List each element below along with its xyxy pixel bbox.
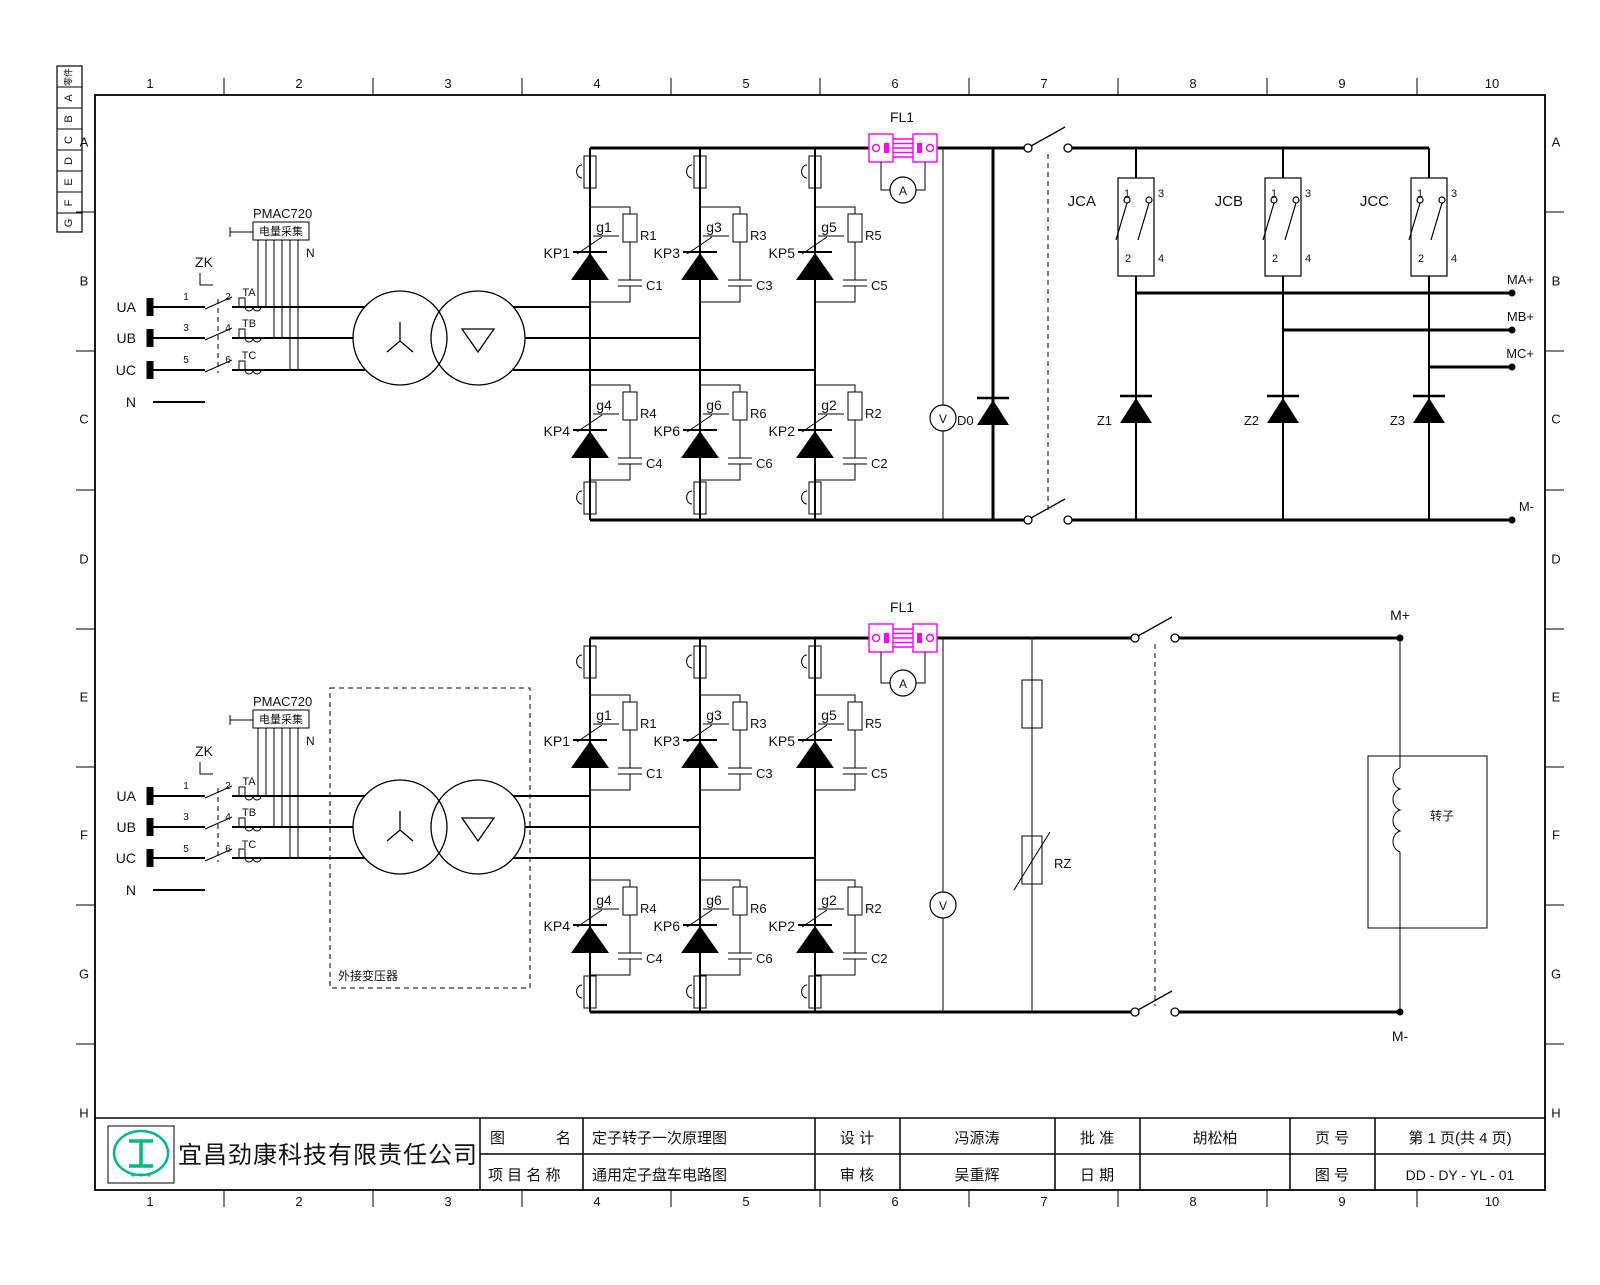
corner-strip: 零件 A B C D E F G (57, 66, 82, 232)
svg-text:C5: C5 (871, 766, 888, 781)
phase-uc-label: UC (116, 850, 136, 866)
shunt-fuse-fl1 (869, 624, 937, 652)
svg-text:g1: g1 (596, 707, 612, 723)
svg-text:R6: R6 (750, 901, 767, 916)
zone-row: H (1551, 1105, 1560, 1120)
svg-text:R3: R3 (750, 716, 767, 731)
output-ma-label: MA+ (1507, 272, 1534, 287)
external-transformer-label: 外接变压器 (338, 968, 398, 983)
svg-text:FL1: FL1 (890, 599, 914, 615)
zone-letters: A B C D E F G H A B C D E F G H (79, 134, 1561, 1120)
zone-numbers-top: 1 2 3 4 5 6 7 8 9 10 (146, 76, 1499, 91)
svg-text:1: 1 (1124, 188, 1130, 200)
svg-text:2: 2 (225, 781, 231, 792)
zone-row: F (1552, 827, 1560, 842)
project-name-value: 通用定子盘车电路图 (592, 1166, 727, 1184)
phase-ua-label: UA (117, 788, 137, 804)
ct-ta-label: TA (242, 776, 256, 788)
strip-cell: 零件 (62, 68, 73, 86)
diode-z1 (1120, 396, 1152, 423)
svg-text:3: 3 (1305, 188, 1311, 200)
svg-text:4: 4 (225, 812, 231, 823)
c4-label: C4 (646, 456, 663, 471)
zone-col: 9 (1338, 1194, 1345, 1209)
output-mminus-label: M- (1519, 499, 1534, 514)
kp6-label: KP6 (654, 423, 681, 439)
strip-cell: D (63, 157, 75, 165)
zone-col: 1 (146, 1194, 153, 1209)
stator-transformer (353, 291, 525, 385)
thyristor-kp6 (681, 414, 729, 458)
rotor-circuit: UA UB UC N ZK 12 34 56 TA TB TC PMAC720 … (116, 599, 1487, 1044)
dc-switch-bottom (1131, 991, 1179, 1016)
ct-tb-label: TB (242, 807, 256, 819)
zone-col: 1 (146, 76, 153, 91)
zk-pin: 2 (225, 292, 231, 303)
output-mc-label: MC+ (1506, 346, 1534, 361)
mminus-label: M- (1392, 1028, 1409, 1044)
svg-text:ZK: ZK (195, 743, 214, 759)
jcb-label: JCB (1215, 193, 1243, 210)
svg-text:C3: C3 (756, 766, 773, 781)
svg-text:KP3: KP3 (654, 733, 681, 749)
strip-cell: A (63, 94, 75, 102)
kp5-label: KP5 (769, 245, 796, 261)
zone-row: A (80, 134, 89, 149)
checker-name: 吴重辉 (954, 1167, 999, 1184)
zone-row: E (80, 689, 89, 704)
zk-label: ZK (195, 254, 214, 270)
svg-text:1: 1 (1417, 188, 1423, 200)
zone-row: F (80, 827, 88, 842)
thyristor-kp1 (571, 724, 619, 768)
svg-text:C4: C4 (646, 951, 663, 966)
c3-label: C3 (756, 278, 773, 293)
strip-cell: B (63, 115, 75, 122)
zone-row: E (1552, 689, 1561, 704)
kp1-label: KP1 (544, 245, 571, 261)
thyristor-kp5 (796, 724, 844, 768)
svg-text:A: A (899, 677, 907, 691)
svg-text:N: N (306, 734, 315, 748)
company-name: 宜昌劲康科技有限责任公司 (178, 1142, 478, 1169)
g5-label: g5 (821, 219, 837, 235)
zone-col: 7 (1040, 76, 1047, 91)
kp2-label: KP2 (769, 423, 796, 439)
pmac-model: PMAC720 (253, 206, 312, 221)
svg-text:R1: R1 (640, 716, 657, 731)
company-logo (108, 1126, 174, 1183)
zk-pin: 1 (183, 292, 189, 303)
zone-col: 2 (295, 1194, 302, 1209)
zone-row: A (1552, 134, 1561, 149)
zone-col: 8 (1189, 1194, 1196, 1209)
svg-text:R5: R5 (865, 716, 882, 731)
thyristor-kp3 (681, 236, 729, 280)
neutral-label: N (126, 882, 136, 898)
drawing-name-label: 图 (490, 1130, 505, 1147)
svg-text:C2: C2 (871, 951, 888, 966)
svg-text:KP6: KP6 (654, 918, 681, 934)
phase-ub-label: UB (117, 330, 136, 346)
kp3-label: KP3 (654, 245, 681, 261)
zk-pin: 5 (183, 355, 189, 366)
approver-name: 胡松柏 (1192, 1130, 1237, 1147)
svg-text:V: V (939, 899, 947, 913)
zone-row: C (79, 411, 88, 426)
jca-label: JCA (1068, 193, 1096, 210)
thyristor-kp5 (796, 236, 844, 280)
rotor-transformer (353, 780, 525, 874)
zone-col: 5 (742, 76, 749, 91)
thyristor-kp4 (571, 414, 619, 458)
dc-switch-bottom (1024, 499, 1072, 524)
svg-text:2: 2 (1272, 253, 1278, 265)
zone-row: G (79, 966, 89, 981)
g3-label: g3 (706, 219, 722, 235)
g1-label: g1 (596, 219, 612, 235)
rotor-label: 转子 (1430, 808, 1454, 823)
svg-text:2: 2 (1125, 253, 1131, 265)
svg-text:3: 3 (183, 812, 189, 823)
z2-label: Z2 (1244, 413, 1259, 428)
r3-label: R3 (750, 228, 767, 243)
g4-label: g4 (596, 397, 612, 413)
zone-col: 6 (891, 1194, 898, 1209)
phase-ua-label: UA (117, 299, 137, 315)
project-name-label: 项 目 名 称 (488, 1167, 561, 1184)
contactor-jca (1116, 178, 1154, 276)
external-transformer-box (330, 688, 530, 988)
thyristor-kp1 (571, 236, 619, 280)
contactor-jcb (1263, 178, 1301, 276)
output-mb-label: MB+ (1507, 309, 1534, 324)
svg-text:C6: C6 (756, 951, 773, 966)
thyristor-kp4 (571, 909, 619, 953)
date-label: 日 期 (1080, 1167, 1114, 1184)
zone-col: 10 (1485, 1194, 1499, 1209)
zone-numbers-bottom: 1 2 3 4 5 6 7 8 9 10 (146, 1194, 1499, 1209)
dwgno-value: DD - DY - YL - 01 (1406, 1167, 1515, 1183)
svg-text:g3: g3 (706, 707, 722, 723)
svg-text:4: 4 (1158, 253, 1164, 265)
check-label: 审 核 (840, 1167, 874, 1184)
r4-label: R4 (640, 406, 657, 421)
zk-pin: 4 (225, 323, 231, 334)
c1-label: C1 (646, 278, 663, 293)
zone-col: 2 (295, 76, 302, 91)
zone-col: 9 (1338, 76, 1345, 91)
contactor-pins: 13 24 13 24 13 24 (1124, 188, 1457, 265)
r1-label: R1 (640, 228, 657, 243)
svg-text:6: 6 (225, 844, 231, 855)
dc-switch-top (1131, 617, 1179, 642)
shunt-fuse-fl1 (869, 134, 937, 162)
zone-col: 7 (1040, 1194, 1047, 1209)
zone-row: B (80, 273, 89, 288)
diode-z3 (1413, 396, 1445, 423)
strip-cell: F (63, 199, 75, 206)
svg-text:电量采集: 电量采集 (259, 712, 303, 726)
thyristor-kp6 (681, 909, 729, 953)
drawing-name-value: 定子转子一次原理图 (592, 1130, 727, 1147)
g2-label: g2 (821, 397, 837, 413)
pmac-name: 电量采集 (259, 224, 303, 238)
strip-cell: C (63, 136, 75, 144)
svg-text:2: 2 (1418, 253, 1424, 265)
z1-label: Z1 (1097, 413, 1112, 428)
breaker-zk: ZK 1 2 3 4 5 6 (183, 254, 232, 373)
design-label: 设 计 (840, 1130, 874, 1147)
svg-text:R2: R2 (865, 901, 882, 916)
svg-text:1: 1 (1271, 188, 1277, 200)
svg-text:C1: C1 (646, 766, 663, 781)
zk-pin: 3 (183, 323, 189, 334)
zone-col: 4 (593, 1194, 600, 1209)
svg-text:5: 5 (183, 844, 189, 855)
svg-text:PMAC720: PMAC720 (253, 694, 312, 709)
svg-text:g6: g6 (706, 892, 722, 908)
thyristor-kp2 (796, 414, 844, 458)
zone-row: D (1551, 551, 1560, 566)
c5-label: C5 (871, 278, 888, 293)
dc-switch-top (1024, 127, 1072, 152)
fl1-label: FL1 (890, 109, 914, 125)
dwgno-label: 图 号 (1315, 1167, 1349, 1184)
zone-col: 3 (444, 76, 451, 91)
mplus-label: M+ (1390, 607, 1410, 623)
svg-text:3: 3 (1158, 188, 1164, 200)
thyristor-kp3 (681, 724, 729, 768)
svg-text:R4: R4 (640, 901, 657, 916)
zk-pin: 6 (225, 355, 231, 366)
ct-ta-label: TA (242, 287, 256, 299)
page-value: 第 1 页(共 4 页) (1408, 1129, 1511, 1147)
zone-row: B (1552, 273, 1561, 288)
neutral-label: N (126, 394, 136, 410)
svg-text:4: 4 (1305, 253, 1311, 265)
zone-col: 3 (444, 1194, 451, 1209)
svg-text:KP5: KP5 (769, 733, 796, 749)
phase-ub-label: UB (117, 819, 136, 835)
kp4-label: KP4 (544, 423, 571, 439)
svg-text:KP2: KP2 (769, 918, 796, 934)
drawing-name-label2: 名 (556, 1130, 571, 1147)
d0-label: D0 (957, 413, 974, 428)
svg-text:KP1: KP1 (544, 733, 571, 749)
title-block: 宜昌劲康科技有限责任公司 图 名 定子转子一次原理图 项 目 名 称 通用定子盘… (95, 1118, 1545, 1190)
contactor-jcc (1409, 178, 1447, 276)
schematic-canvas: 1 2 3 4 5 6 7 8 9 10 1 2 3 4 5 6 7 8 9 1… (0, 0, 1600, 1280)
thyristor-kp2 (796, 909, 844, 953)
zone-col: 5 (742, 1194, 749, 1209)
svg-text:g2: g2 (821, 892, 837, 908)
c6-label: C6 (756, 456, 773, 471)
ammeter-label: A (899, 184, 907, 198)
zone-row: D (79, 551, 88, 566)
r6-label: R6 (750, 406, 767, 421)
z3-label: Z3 (1390, 413, 1405, 428)
g6-label: g6 (706, 397, 722, 413)
svg-text:KP4: KP4 (544, 918, 571, 934)
varistor-branch: RZ (1014, 638, 1071, 1012)
ct-tb-label: TB (242, 318, 256, 330)
c2-label: C2 (871, 456, 888, 471)
svg-text:g4: g4 (596, 892, 612, 908)
zone-row: C (1551, 411, 1560, 426)
jcc-label: JCC (1360, 193, 1389, 210)
voltmeter-label: V (939, 412, 947, 426)
pmac-n-label: N (306, 246, 315, 260)
r2-label: R2 (865, 406, 882, 421)
diode-z2 (1267, 396, 1299, 423)
zone-row: H (79, 1105, 88, 1120)
ct-tc-label: TC (242, 839, 257, 851)
r5-label: R5 (865, 228, 882, 243)
stator-circuit: UA UB UC N ZK 1 2 3 4 5 6 TA TB TC PMAC7… (116, 109, 1534, 524)
breaker-zk: ZK 12 34 56 (183, 743, 232, 862)
zone-col: 6 (891, 76, 898, 91)
ct-tc-label: TC (242, 350, 257, 362)
zone-row: G (1551, 966, 1561, 981)
page-label: 页 号 (1315, 1130, 1349, 1147)
rotor-box (1368, 756, 1487, 928)
approve-label: 批 准 (1080, 1130, 1114, 1147)
strip-cell: E (63, 178, 75, 185)
svg-text:3: 3 (1451, 188, 1457, 200)
phase-uc-label: UC (116, 362, 136, 378)
zone-col: 10 (1485, 76, 1499, 91)
rotor-winding-icon (1393, 768, 1400, 852)
svg-text:1: 1 (183, 781, 189, 792)
svg-text:g5: g5 (821, 707, 837, 723)
designer-name: 冯源涛 (954, 1130, 999, 1147)
svg-text:4: 4 (1451, 253, 1457, 265)
rz-label: RZ (1054, 856, 1071, 871)
zone-col: 4 (593, 76, 600, 91)
freewheel-diode (977, 398, 1009, 425)
zone-col: 8 (1189, 76, 1196, 91)
strip-cell: G (63, 219, 75, 228)
drawing-page: 1 2 3 4 5 6 7 8 9 10 1 2 3 4 5 6 7 8 9 1… (0, 0, 1600, 1280)
